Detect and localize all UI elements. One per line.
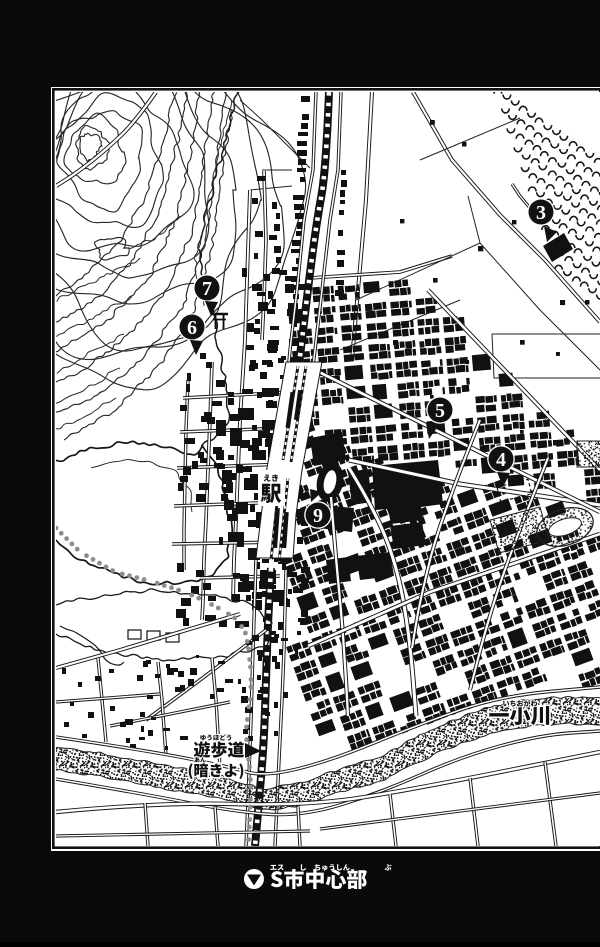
- svg-text:4: 4: [496, 449, 506, 471]
- svg-text:6: 6: [187, 317, 197, 339]
- svg-text:7: 7: [202, 278, 212, 300]
- svg-text:9: 9: [313, 505, 323, 527]
- svg-text:5: 5: [435, 400, 445, 422]
- svg-text:3: 3: [536, 202, 546, 224]
